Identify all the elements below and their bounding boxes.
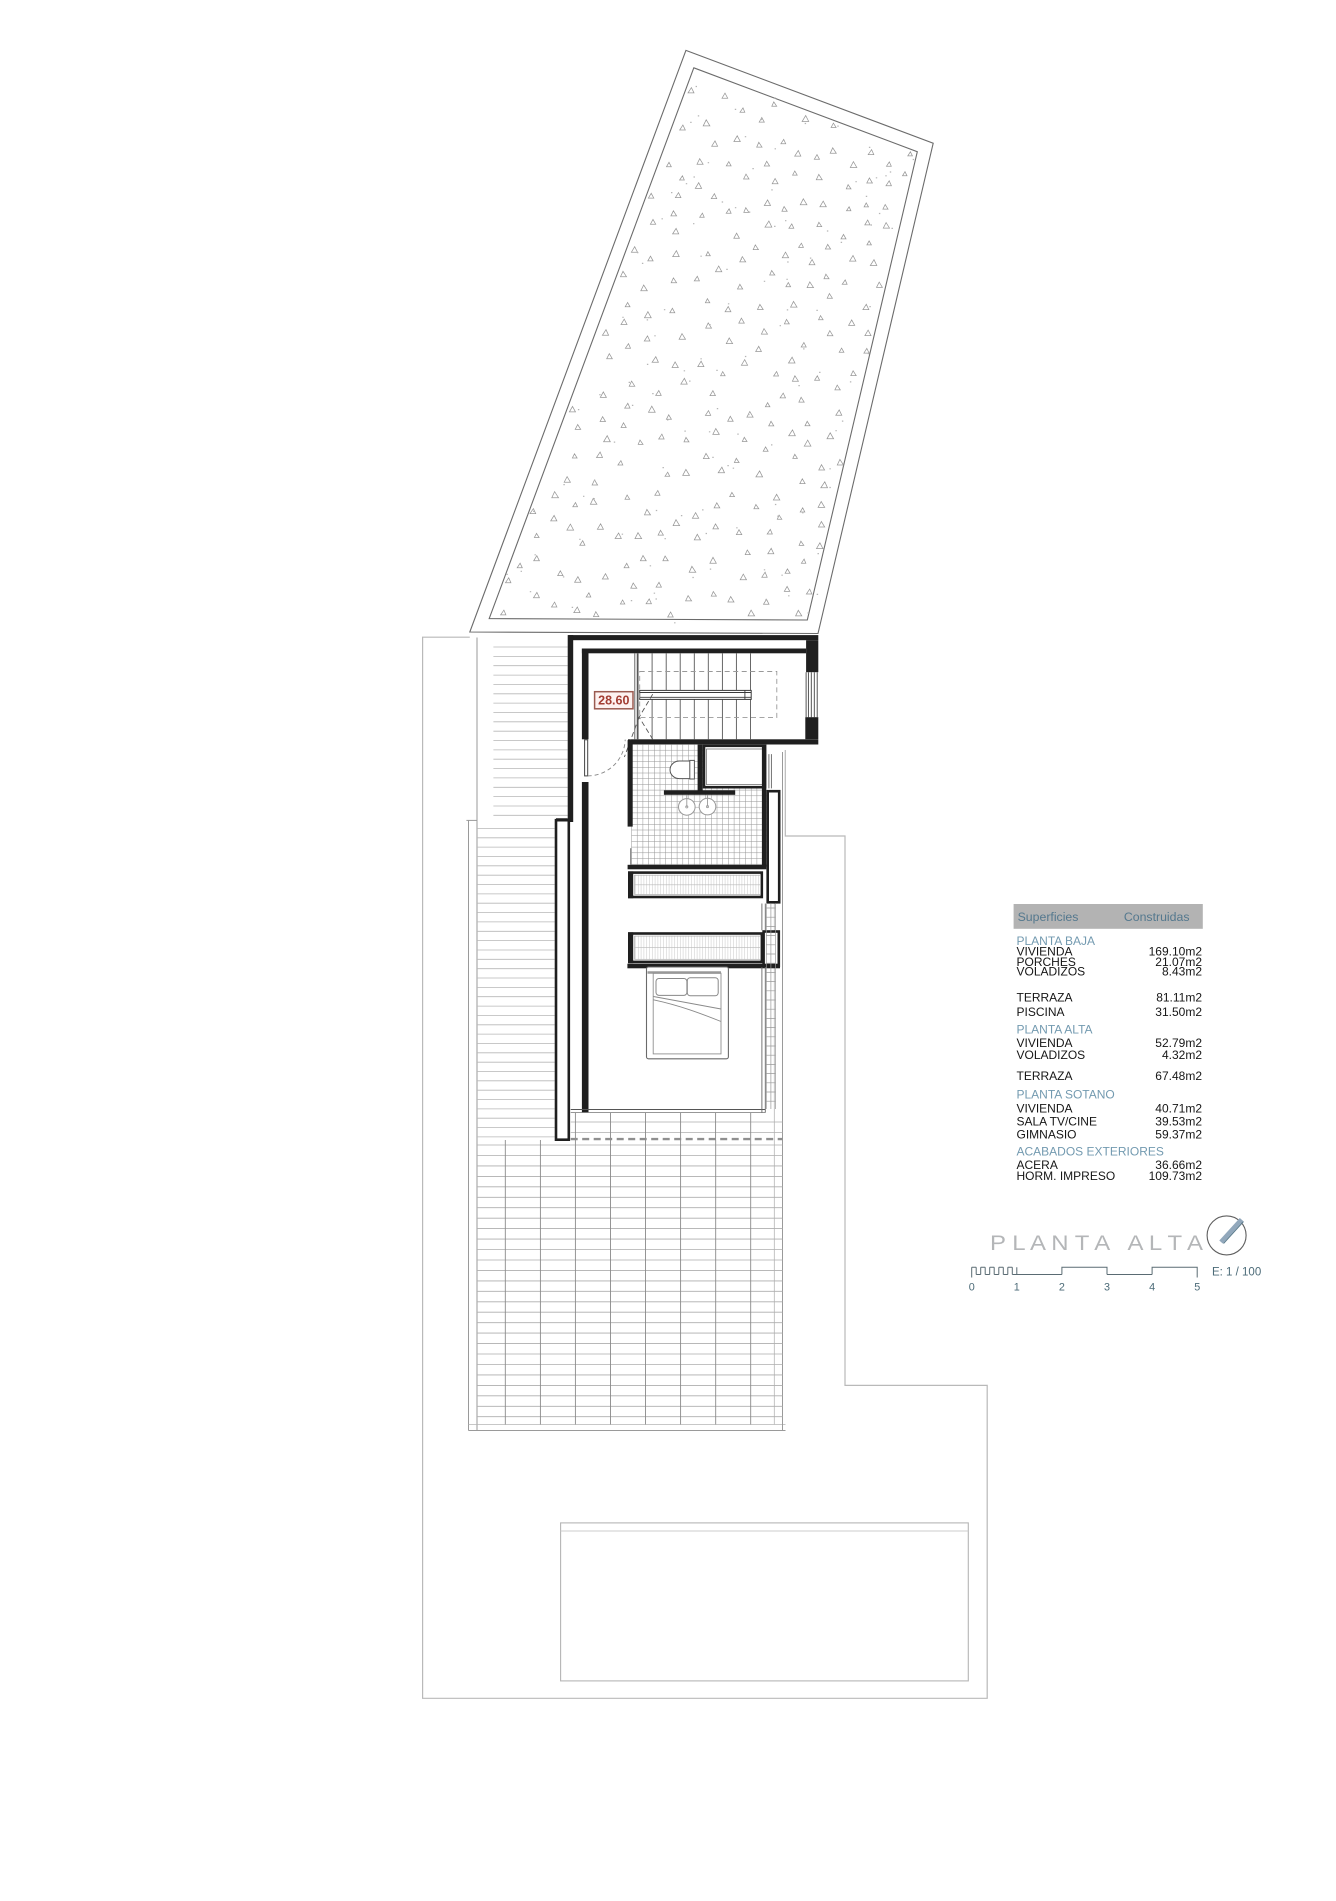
svg-text:40.71m2: 40.71m2 [1155, 1102, 1202, 1116]
svg-text:109.73m2: 109.73m2 [1149, 1169, 1203, 1183]
svg-text:VOLADIZOS: VOLADIZOS [1017, 1048, 1086, 1062]
svg-text:59.37m2: 59.37m2 [1155, 1128, 1202, 1142]
svg-text:4.32m2: 4.32m2 [1162, 1048, 1202, 1062]
svg-text:ACABADOS EXTERIORES: ACABADOS EXTERIORES [1017, 1144, 1164, 1158]
svg-text:31.50m2: 31.50m2 [1155, 1005, 1202, 1019]
svg-text:SALA TV/CINE: SALA TV/CINE [1017, 1115, 1097, 1129]
svg-text:67.48m2: 67.48m2 [1155, 1069, 1202, 1083]
svg-text:GIMNASIO: GIMNASIO [1017, 1128, 1077, 1142]
svg-text:39.53m2: 39.53m2 [1155, 1115, 1202, 1129]
svg-text:E: 1 / 100: E: 1 / 100 [1212, 1266, 1261, 1278]
svg-text:4: 4 [1149, 1282, 1155, 1294]
svg-text:2: 2 [1059, 1282, 1065, 1294]
svg-text:VOLADIZOS: VOLADIZOS [1017, 964, 1086, 978]
svg-text:8.43m2: 8.43m2 [1162, 964, 1202, 978]
svg-text:5: 5 [1194, 1282, 1200, 1294]
svg-text:P L A N T A A L T A: P L A N T A A L T A [990, 1232, 1203, 1255]
svg-text:TERRAZA: TERRAZA [1017, 990, 1073, 1004]
svg-text:3: 3 [1104, 1282, 1110, 1294]
svg-text:1: 1 [1014, 1282, 1020, 1294]
svg-text:Construidas: Construidas [1124, 910, 1190, 924]
svg-text:81.11m2: 81.11m2 [1156, 990, 1202, 1004]
svg-text:PLANTA ALTA: PLANTA ALTA [1017, 1023, 1093, 1037]
svg-text:Superficies: Superficies [1018, 910, 1079, 924]
svg-text:PISCINA: PISCINA [1017, 1005, 1065, 1019]
svg-text:HORM. IMPRESO: HORM. IMPRESO [1017, 1169, 1116, 1183]
svg-text:28.60: 28.60 [598, 693, 629, 707]
svg-text:PLANTA SOTANO: PLANTA SOTANO [1017, 1087, 1115, 1101]
svg-text:TERRAZA: TERRAZA [1017, 1069, 1073, 1083]
svg-text:0: 0 [969, 1282, 975, 1294]
svg-text:VIVIENDA: VIVIENDA [1017, 1102, 1073, 1116]
